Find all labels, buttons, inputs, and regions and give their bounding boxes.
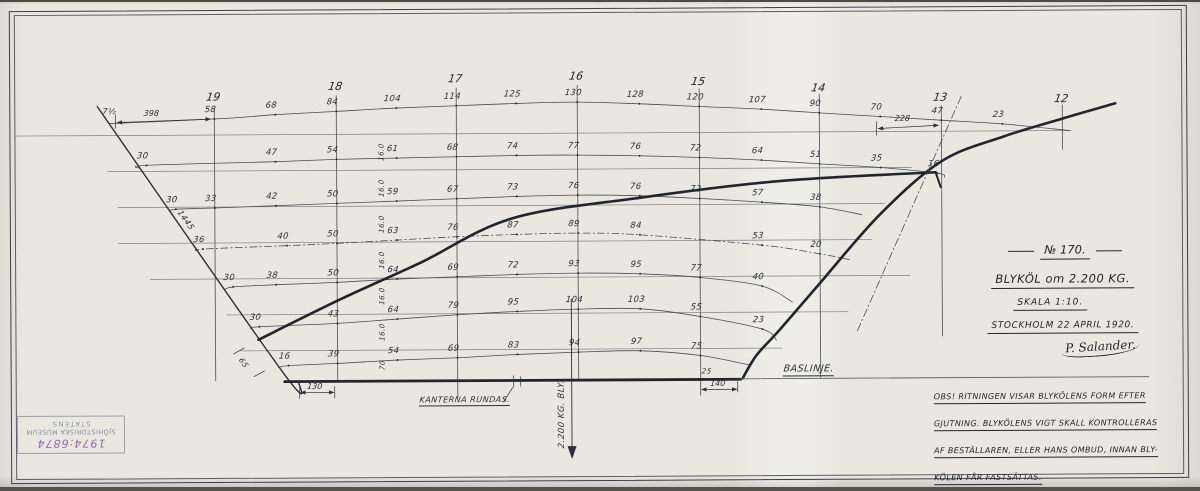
offset-value: 50 xyxy=(327,189,339,199)
offset-value: 57 xyxy=(752,188,764,198)
offset-value: 114 xyxy=(443,92,461,102)
small-dim-label: 25 xyxy=(701,367,712,375)
remark-line: AF BESTÄLLAREN, ELLER HANS OMBUD, INNAN … xyxy=(934,445,1158,458)
offset-value: 94 xyxy=(568,338,580,348)
offset-value: 61 xyxy=(386,144,398,154)
drawing-title: BLYKÖL om 2.200 KG. xyxy=(955,271,1170,289)
offset-value: 70 xyxy=(870,103,882,113)
offset-value: 104 xyxy=(383,94,401,104)
offset-value: 36 xyxy=(193,235,205,245)
station-number-13: 13 xyxy=(932,91,948,104)
offset-value: 30 xyxy=(166,195,178,205)
drawing-place-date: STOCKHOLM 22 APRIL 1920. xyxy=(965,320,1160,334)
dimension-value: 398 xyxy=(143,109,159,118)
drawing-number-text: № 170. xyxy=(1040,242,1089,259)
offset-value: 69 xyxy=(447,344,459,354)
spacing-label: 16.0 xyxy=(378,215,386,233)
spacing-label: 70 xyxy=(379,360,387,371)
offset-value: 90 xyxy=(809,99,821,109)
spacing-label: 16.0 xyxy=(378,287,386,305)
museum-stamp-line2: SJÖHISTORISKA MUSEUM xyxy=(21,428,121,437)
remark-line: GJUTNING. BLYKÖLENS VIGT SKALL KONTROLLE… xyxy=(934,418,1158,431)
offset-value: 76 xyxy=(629,182,641,192)
offset-value: 43 xyxy=(327,309,339,319)
offset-value: 20 xyxy=(810,240,822,250)
offset-value: 55 xyxy=(690,302,702,312)
offset-value: 58 xyxy=(204,105,216,115)
offset-value: 68 xyxy=(446,143,458,153)
offset-value: 84 xyxy=(326,97,338,107)
offset-value: 30 xyxy=(223,273,235,283)
offset-value: 72 xyxy=(689,184,701,194)
corner-dim-label: 65 xyxy=(237,356,251,369)
archive-number: 1974:6874 xyxy=(21,437,121,451)
offset-value: 38 xyxy=(266,271,278,281)
offset-value: 69 xyxy=(447,263,459,273)
offset-value: 53 xyxy=(752,231,764,241)
scanned-drawing-sheet: 1918171615141312586884104114125130128120… xyxy=(0,0,1200,491)
drawing-place-date-text: STOCKHOLM 22 APRIL 1920. xyxy=(987,320,1138,334)
spacing-label: 16.0 xyxy=(378,179,386,197)
station-number-15: 15 xyxy=(690,75,706,88)
offset-value: 40 xyxy=(277,232,289,242)
offset-value: 87 xyxy=(507,220,519,230)
offset-value: 54 xyxy=(326,145,338,155)
drawing-scale-text: SKALA 1:10. xyxy=(1013,297,1087,310)
offset-value: 39 xyxy=(327,349,339,359)
lead-weight-label: 2.200 KG. BLY. xyxy=(557,380,567,449)
offset-value: 47 xyxy=(265,148,277,158)
offset-value: 89 xyxy=(568,219,580,229)
offset-value: 50 xyxy=(327,268,339,278)
scan-edge-top xyxy=(0,0,1200,2)
left-end-value: 7½ xyxy=(102,107,117,116)
remark-note: OBS! RITNINGEN VISAR BLYKÖLENS FORM EFTE… xyxy=(934,383,1200,491)
remark-line: OBS! RITNINGEN VISAR BLYKÖLENS FORM EFTE… xyxy=(934,391,1146,404)
offset-value: 107 xyxy=(748,95,766,105)
decorative-dash xyxy=(1096,250,1122,251)
offset-value: 64 xyxy=(751,146,763,156)
scan-edge-bottom xyxy=(0,487,1200,491)
drawing-number: № 170. xyxy=(985,242,1145,260)
offset-value: 67 xyxy=(446,185,458,195)
offset-value: 42 xyxy=(266,192,278,202)
offset-value: 47 xyxy=(931,106,943,116)
slant-length-label: 1445 xyxy=(175,209,196,232)
station-number-14: 14 xyxy=(810,81,826,94)
station-number-17: 17 xyxy=(447,72,463,85)
decorative-dash xyxy=(1008,251,1034,252)
offset-value: 50 xyxy=(327,229,339,239)
offset-value: 64 xyxy=(387,305,399,315)
offset-value: 63 xyxy=(387,226,399,236)
offset-value: 128 xyxy=(626,90,644,100)
drawing-scale: SKALA 1:10. xyxy=(975,297,1125,311)
offset-value: 77 xyxy=(567,141,579,151)
station-number-12: 12 xyxy=(1053,92,1069,105)
offset-value: 72 xyxy=(689,143,701,153)
spacing-label: 16.0 xyxy=(378,251,386,269)
offset-value: 76 xyxy=(567,181,579,191)
offset-value: 76 xyxy=(629,142,641,152)
offset-value: 104 xyxy=(565,295,583,305)
offset-value: 68 xyxy=(265,101,277,111)
offset-value: 23 xyxy=(992,110,1004,120)
offset-value: 35 xyxy=(870,154,882,164)
baseline-label: BASLINJE. xyxy=(783,363,835,376)
offset-value: 40 xyxy=(752,272,764,282)
offset-value: 59 xyxy=(387,187,399,197)
offset-value: 77 xyxy=(690,263,702,273)
dimension-value: 140 xyxy=(710,379,726,388)
offset-value: 33 xyxy=(205,194,217,204)
remark-line: KÖLEN FÅR FASTSÄTTAS. xyxy=(934,473,1042,485)
offset-value: 83 xyxy=(507,340,519,350)
offset-value: 130 xyxy=(564,88,582,98)
offset-value: 51 xyxy=(809,150,821,160)
spacing-label: 16.0 xyxy=(378,323,386,341)
offset-value: 93 xyxy=(568,259,580,269)
dimension-value: 228 xyxy=(894,114,910,123)
offset-value: 16 xyxy=(927,159,939,169)
offset-value: 95 xyxy=(630,260,642,270)
offset-value: 64 xyxy=(387,265,399,275)
station-number-16: 16 xyxy=(568,70,584,83)
offset-value: 125 xyxy=(503,89,521,99)
offset-value: 74 xyxy=(506,141,518,151)
offset-value: 38 xyxy=(810,193,822,203)
dimension-value: 130 xyxy=(307,382,323,391)
station-number-19: 19 xyxy=(205,90,221,103)
spacing-label: 16.0 xyxy=(377,143,385,161)
drawing-title-text: BLYKÖL om 2.200 KG. xyxy=(991,271,1134,289)
offset-value: 30 xyxy=(249,313,261,323)
museum-stamp-box: 1974:6874 SJÖHISTORISKA MUSEUM STATENS xyxy=(17,415,125,454)
offset-value: 75 xyxy=(690,341,702,351)
offset-value: 30 xyxy=(136,151,148,161)
offset-value: 23 xyxy=(752,315,764,325)
offset-value: 79 xyxy=(447,301,459,311)
station-number-18: 18 xyxy=(327,80,343,93)
offset-value: 16 xyxy=(278,352,290,362)
offset-value: 95 xyxy=(507,297,519,307)
edges-rounded-label: KANTERNA RUNDAS. xyxy=(419,395,511,406)
offset-value: 72 xyxy=(507,260,519,270)
offset-value: 84 xyxy=(630,221,642,231)
offset-value: 103 xyxy=(627,295,645,305)
offset-value: 76 xyxy=(447,223,459,233)
offset-value: 120 xyxy=(686,92,704,102)
offset-value: 54 xyxy=(387,346,399,356)
offset-value: 73 xyxy=(506,182,518,192)
museum-stamp: 1974:6874 SJÖHISTORISKA MUSEUM STATENS xyxy=(17,415,125,454)
offset-value: 97 xyxy=(630,337,642,347)
